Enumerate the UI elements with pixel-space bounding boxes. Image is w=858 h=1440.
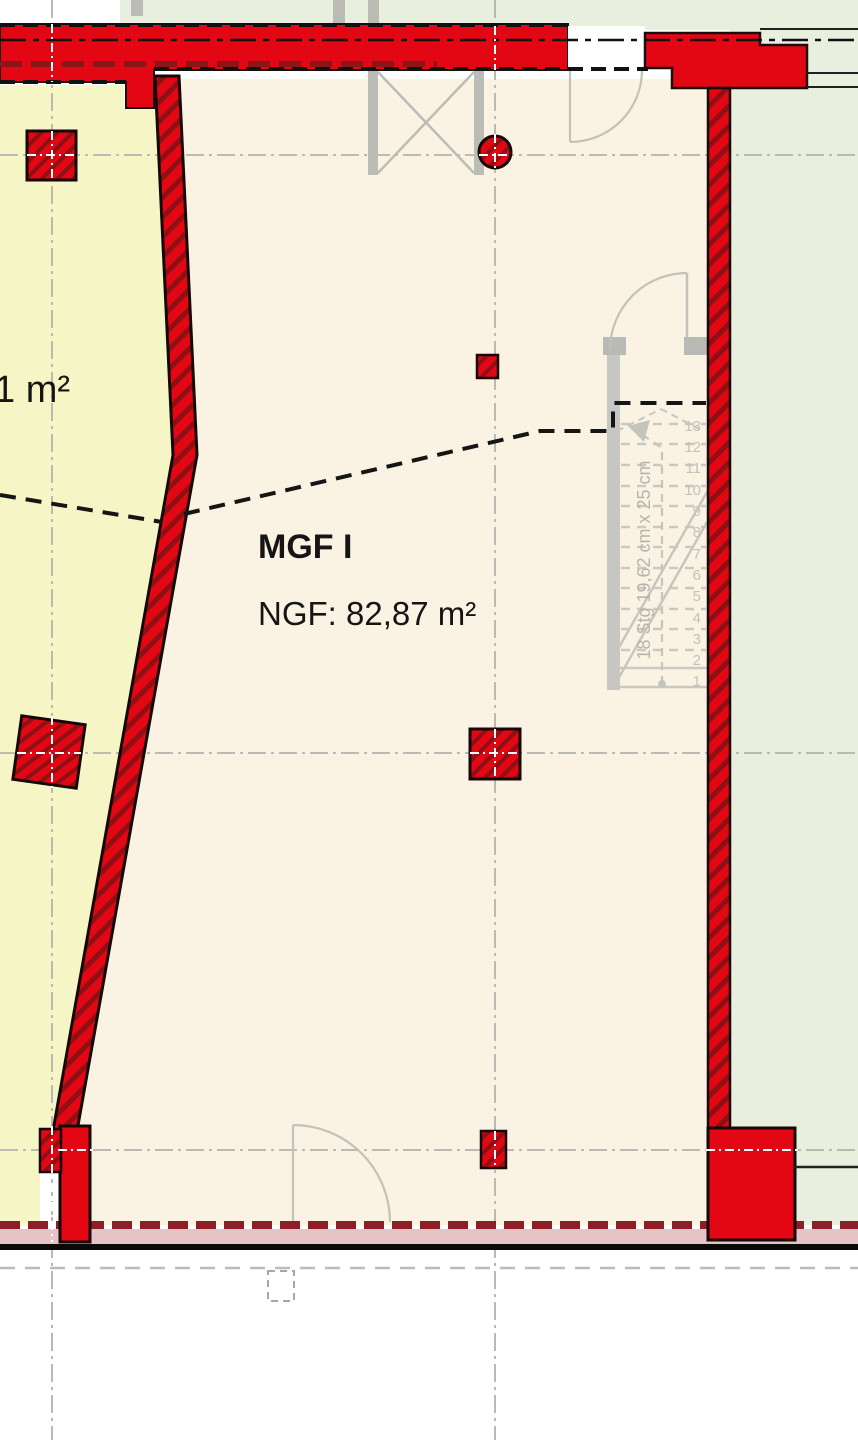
room-name-label: MGF I [258,528,352,566]
stair-door-frame-left [603,337,626,355]
stair-dimension-label: 18 Stg 19,62 cm x 25 cm [634,460,654,659]
floor-plan-drawing: 13 12 11 10 9 8 7 6 5 4 3 2 1 18 Stg 19,… [0,0,858,1440]
stair-step-number: 8 [693,524,701,541]
stair-step-number: 7 [693,546,701,563]
stair-step-number: 2 [693,652,701,669]
adjacent-room-area-label: 1 m² [0,369,70,411]
stair-step-number: 12 [684,439,701,456]
column-bottom-center [481,1131,506,1168]
stair-step-number: 9 [693,503,701,520]
stair-step-number: 10 [684,482,701,499]
floor-plan-viewport: 13 12 11 10 9 8 7 6 5 4 3 2 1 18 Stg 19,… [0,0,858,1440]
bottom-section-line [0,1244,858,1250]
stair-step-number: 3 [693,631,701,648]
stair-step-number: 5 [693,588,701,605]
stair-step-number: 4 [693,610,701,627]
bottom-left-column [40,1129,61,1172]
stair-walking-line-start-dot [658,680,666,688]
room-area-label: NGF: 82,87 m² [258,595,476,632]
upper-floor-post [131,0,143,16]
stair-step-number: 6 [693,567,701,584]
stair-step-number: 11 [685,460,701,477]
exterior-right-area [730,29,858,1225]
stair-step-number: 13 [684,418,701,435]
column-center-small [477,355,498,378]
bottom-right-pier [708,1128,795,1240]
top-door-opening [568,26,645,70]
right-wall [708,88,730,1130]
stair-step-number: 1 [693,673,701,690]
bottom-left-pier [60,1126,90,1242]
shaft-post-left [368,70,378,175]
stair-door-frame-right [684,337,707,355]
